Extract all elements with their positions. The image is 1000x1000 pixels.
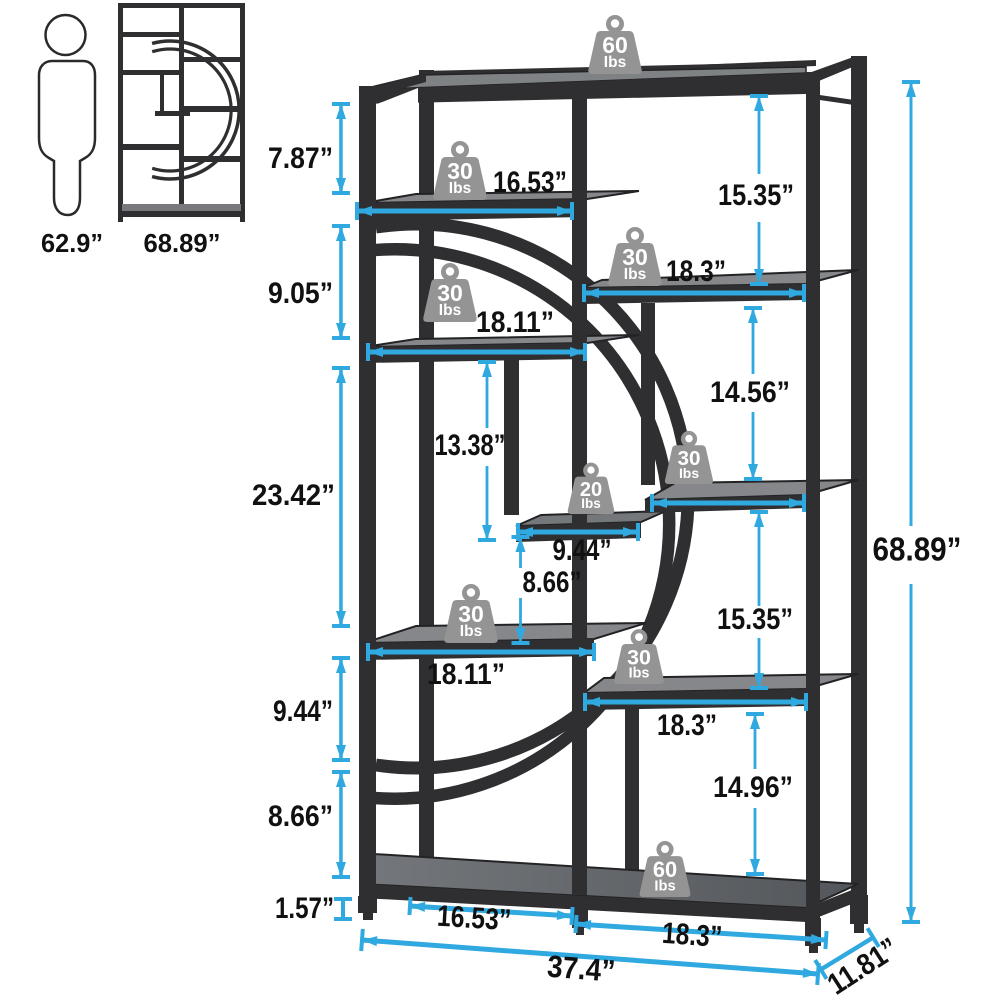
svg-text:16.53”: 16.53” xyxy=(493,166,567,199)
svg-text:Ibs: Ibs xyxy=(679,465,699,481)
svg-text:62.9”: 62.9” xyxy=(41,228,103,258)
svg-text:Ibs: Ibs xyxy=(460,623,482,640)
svg-text:18.11”: 18.11” xyxy=(476,306,554,339)
svg-text:18.3”: 18.3” xyxy=(657,709,717,742)
svg-text:Ibs: Ibs xyxy=(449,180,471,197)
svg-text:16.53”: 16.53” xyxy=(436,900,512,937)
svg-text:Ibs: Ibs xyxy=(629,666,650,682)
svg-text:15.35”: 15.35” xyxy=(718,179,794,212)
svg-text:15.35”: 15.35” xyxy=(717,603,793,636)
svg-text:37.4”: 37.4” xyxy=(546,949,617,989)
svg-text:8.66”: 8.66” xyxy=(523,566,582,599)
svg-text:9.44”: 9.44” xyxy=(553,534,612,567)
svg-text:9.44”: 9.44” xyxy=(273,695,333,728)
svg-text:Ibs: Ibs xyxy=(654,878,675,894)
svg-text:Ibs: Ibs xyxy=(581,496,600,511)
svg-text:Ibs: Ibs xyxy=(624,266,646,283)
svg-text:68.89”: 68.89” xyxy=(873,531,962,568)
svg-text:9.05”: 9.05” xyxy=(268,277,333,310)
svg-text:13.38”: 13.38” xyxy=(435,429,506,462)
svg-text:18.3”: 18.3” xyxy=(661,917,723,954)
svg-text:18.11”: 18.11” xyxy=(427,658,505,691)
svg-text:1.57”: 1.57” xyxy=(275,892,334,925)
svg-text:14.56”: 14.56” xyxy=(710,376,790,409)
svg-text:Ibs: Ibs xyxy=(604,54,626,71)
svg-text:68.89”: 68.89” xyxy=(144,228,221,258)
svg-text:Ibs: Ibs xyxy=(439,302,461,319)
svg-text:8.66”: 8.66” xyxy=(268,800,333,833)
svg-text:18.3”: 18.3” xyxy=(666,255,726,288)
svg-text:23.42”: 23.42” xyxy=(252,479,335,512)
svg-text:14.96”: 14.96” xyxy=(713,771,793,804)
svg-text:7.87”: 7.87” xyxy=(268,142,333,175)
